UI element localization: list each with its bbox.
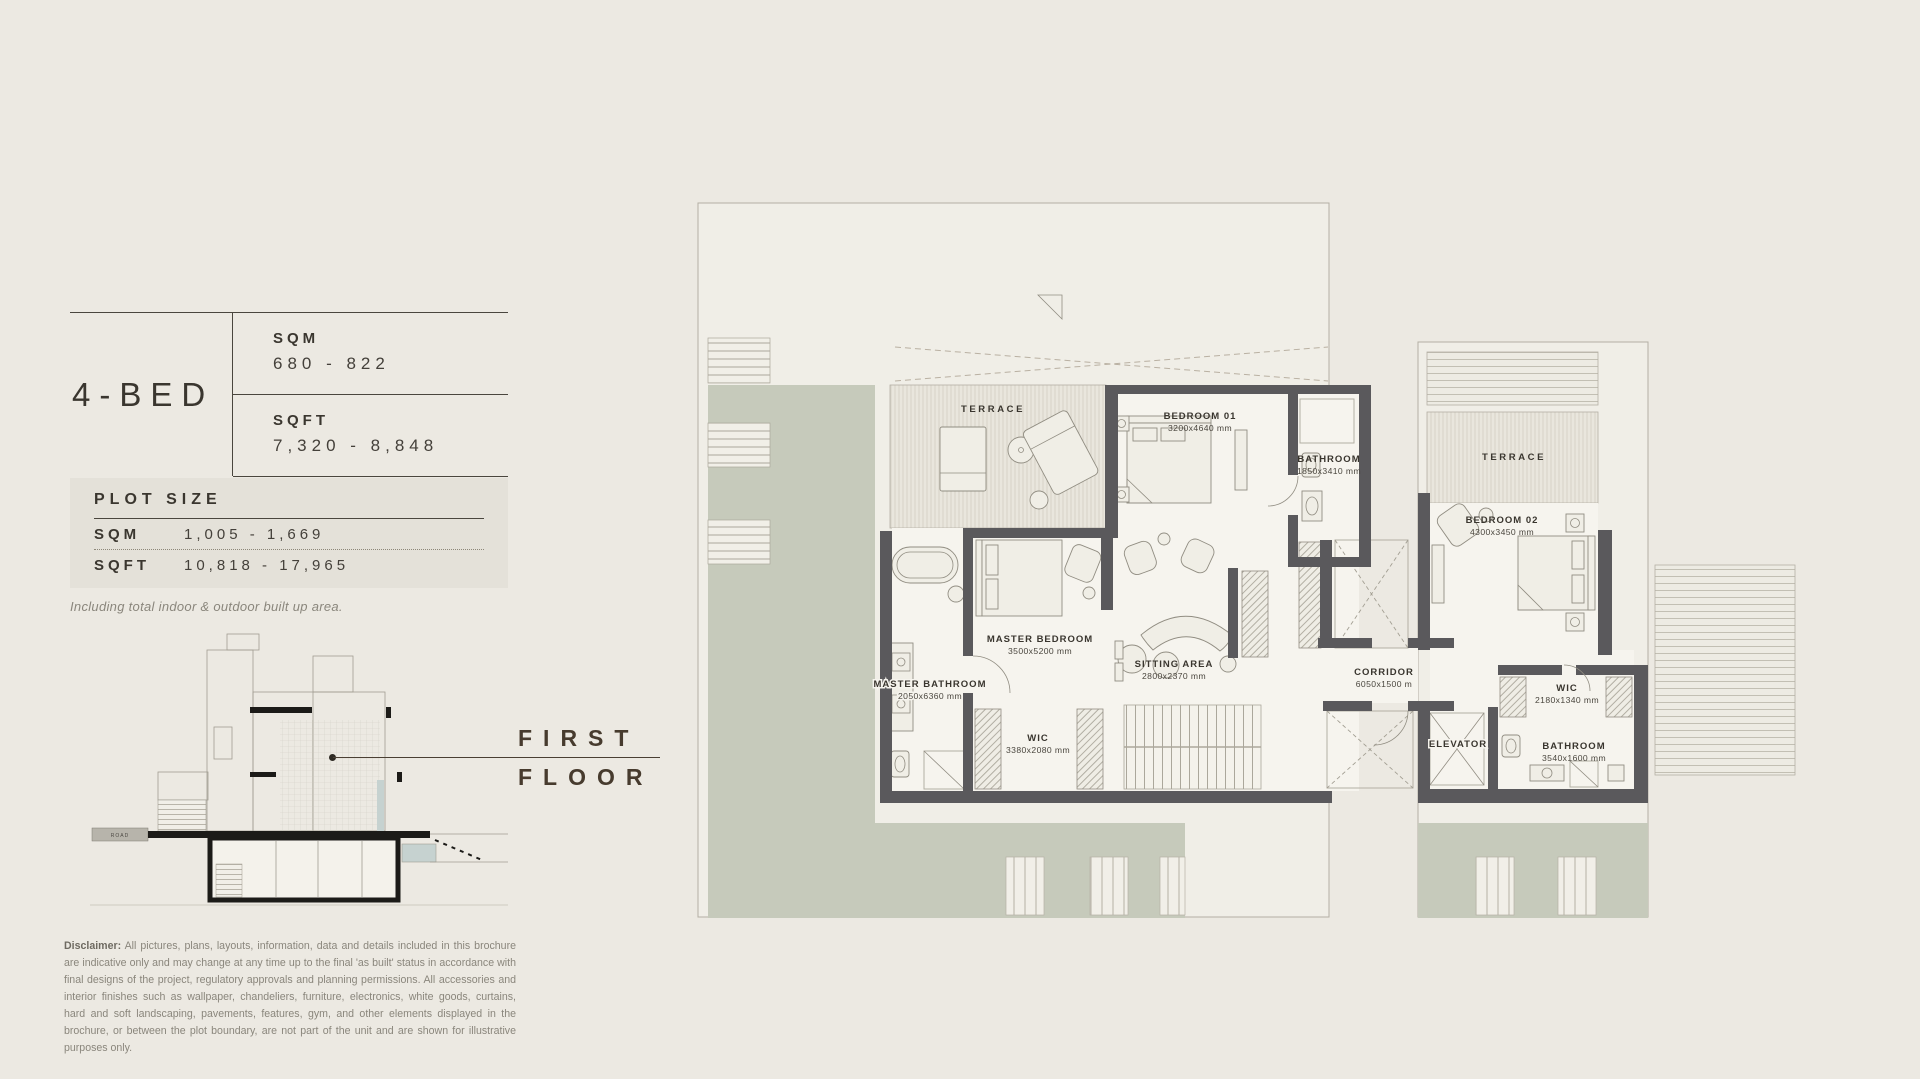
room-label-bedroom-01: BEDROOM 01 [1164,411,1237,422]
plot-sqm-label: SQM [94,526,184,543]
pergola-louvers-top [1427,352,1598,405]
section-pool-upper [377,780,384,831]
room-label-master-bedroom: MASTER BEDROOM [987,634,1093,645]
plot-sqm-value: 1,005 - 1,669 [184,526,324,543]
room-label-bathroom-1: BATHROOM [1297,454,1360,465]
room-dims-master-bathroom: 2050x6360 mm [898,691,962,701]
plot-size-title: PLOT SIZE [94,491,484,519]
floor-name-line1: FIRST [518,725,639,752]
plot-sqft-row: SQFT 10,818 - 17,965 [94,550,484,580]
disclaimer-label: Disclaimer: [64,940,121,952]
service-shaft [1242,571,1268,657]
room-dims-bedroom-02: 4300x3450 mm [1470,527,1534,537]
sqft-label: SQFT [273,412,508,429]
staircase [1124,705,1261,789]
room-label-sitting-area: SITTING AREA [1135,659,1214,670]
sqm-label: SQM [273,330,508,347]
plot-size-box: PLOT SIZE SQM 1,005 - 1,669 SQFT 10,818 … [70,478,508,588]
room-dims-sitting-area: 2800x2370 mm [1142,671,1206,681]
room-label-bathroom-2: BATHROOM [1542,741,1605,752]
room-dims-wic-1: 3380x2080 mm [1006,745,1070,755]
section-pool [402,844,436,862]
floor-name-line2: FLOOR [518,764,654,791]
disclaimer: Disclaimer: All pictures, plans, layouts… [64,938,516,1057]
section-exterior-stairs [158,800,206,831]
section-basement [210,838,398,900]
floor-plan: TERRACE BEDROOM 01 3200x4640 mm BATHROOM… [690,195,1810,925]
unit-area: SQM 680 - 822 SQFT 7,320 - 8,848 [233,313,508,477]
room-label-terrace-1: TERRACE [961,404,1025,415]
room-dims-bathroom-2: 3540x1600 mm [1542,753,1606,763]
unit-area-sqft: SQFT 7,320 - 8,848 [233,394,508,476]
room-label-bedroom-02: BEDROOM 02 [1466,515,1539,526]
disclaimer-text: All pictures, plans, layouts, informatio… [64,940,516,1054]
room-label-master-bathroom: MASTER BATHROOM [874,679,987,690]
section-right-stairs [435,840,482,860]
wic2-wardrobe-left [1500,677,1526,717]
plot-sqft-label: SQFT [94,557,184,574]
room-dims-bathroom-1: 1850x3410 mm [1297,466,1361,476]
room-dims-bedroom-01: 3200x4640 mm [1168,423,1232,433]
unit-area-sqm: SQM 680 - 822 [233,313,508,394]
section-road-label: ROAD [111,833,129,839]
room-dims-master-bedroom: 3500x5200 mm [1008,646,1072,656]
sqm-value: 680 - 822 [273,354,508,374]
building-section-drawing: ROAD [90,632,510,917]
room-label-corridor: CORRIDOR [1354,667,1414,678]
section-massing [158,634,385,831]
plot-note: Including total indoor & outdoor built u… [70,599,343,614]
wic1-wardrobe-left [975,709,1001,789]
room-label-terrace-2: TERRACE [1482,452,1546,463]
section-callout-line [333,757,660,758]
unit-spec-table: 4-BED SQM 680 - 822 SQFT 7,320 - 8,848 [70,312,508,477]
room-dims-corridor: 6050x1500 m [1356,679,1412,689]
pergola-louvers-right [1655,565,1795,775]
plot-sqm-row: SQM 1,005 - 1,669 [94,519,484,550]
room-label-wic-2: WIC [1556,683,1577,694]
unit-name: 4-BED [70,313,233,476]
plot-sqft-value: 10,818 - 17,965 [184,557,349,574]
garden-stairs [708,338,770,564]
wic2-wardrobe-right [1606,677,1632,717]
room-dims-wic-2: 2180x1340 mm [1535,695,1599,705]
room-label-elevator: ELEVATOR [1429,739,1487,750]
wic1-wardrobe-right [1077,709,1103,789]
room-label-wic-1: WIC [1027,733,1048,744]
sqft-value: 7,320 - 8,848 [273,436,508,456]
